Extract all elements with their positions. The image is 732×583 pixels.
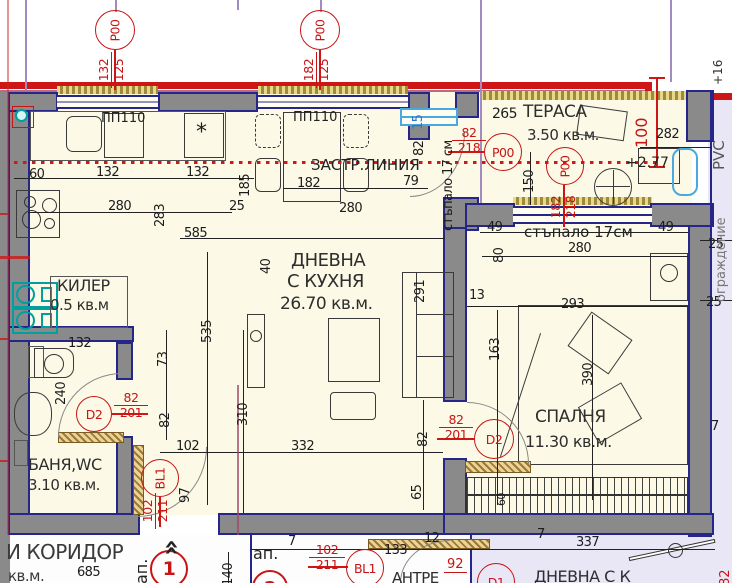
corridor-unit: кв.м. [8, 567, 44, 583]
door-size-b: 201 [439, 427, 473, 442]
dim-label: 60 [495, 493, 508, 506]
door-marker-d2: D2 [474, 419, 514, 459]
sofa [402, 272, 454, 398]
door-marker-label: D2 [486, 432, 503, 447]
axis-dim: 182 125 [302, 52, 331, 88]
axis-dim: 132 125 [97, 52, 126, 88]
dim-line [14, 178, 254, 179]
wall-line-bottom [250, 535, 252, 583]
dim-label: 82 [416, 432, 431, 447]
level-mark: +2.77 [626, 155, 669, 171]
dim-label: 49 [658, 220, 673, 235]
dim-label: 291 [413, 280, 428, 303]
dim-label: 585 [184, 226, 207, 241]
room-living-area: 26.70 кв.м. [280, 294, 373, 314]
dim-82-red: 82 [718, 569, 732, 583]
edge-mark [0, 256, 30, 259]
window-type-label: ПП110 [101, 111, 145, 126]
washing-machine-drum [16, 285, 35, 304]
door-size-82-201: 82 201 [439, 413, 473, 442]
door-size-a: 82 [452, 126, 486, 140]
wall-bottom [218, 513, 445, 535]
door-marker-label: BL1 [354, 561, 376, 576]
dim-label: 15 [411, 115, 426, 130]
armchair [330, 392, 376, 420]
dim-label: 185 [238, 174, 253, 197]
entrance-arrow-glyph: » [156, 539, 186, 556]
door-marker-label: D2 [86, 407, 103, 422]
wall-bedroom-right [688, 225, 712, 537]
door-size-b: 201 [114, 405, 148, 420]
dim-label: 283 [153, 204, 168, 227]
apartment-number: 2 [264, 578, 276, 583]
dim-label: 280 [108, 199, 131, 214]
dim-label: 310 [236, 403, 251, 426]
door-marker-p00: P00 [484, 133, 522, 171]
dim-label: 7 [537, 527, 545, 542]
room-bedroom-name: СПАЛНЯ [535, 407, 606, 427]
wall-divider-lower [443, 458, 467, 515]
entrance-arrow-icon: » [156, 556, 173, 583]
room-bath-area: 3.10 кв.м. [28, 476, 100, 494]
dim-label: 82 [412, 141, 427, 156]
door-size-b: 218 [452, 140, 486, 155]
lamp [660, 264, 678, 282]
dim-label: 332 [291, 439, 314, 454]
room-living-name2: С КУХНЯ [287, 271, 364, 292]
dryer-drum [16, 311, 35, 330]
room-bedroom-area: 11.30 кв.м. [525, 432, 612, 451]
door-size-a: 82 [114, 391, 148, 405]
dim-label: 102 [176, 439, 199, 454]
dim-label: 293 [561, 297, 584, 312]
dining-chair [343, 114, 369, 148]
terrace-door-window [513, 206, 652, 224]
stove-burner [44, 218, 55, 229]
sofa-seat-line [416, 314, 454, 315]
dim-label: 40 [259, 259, 274, 274]
window-sill [513, 197, 652, 205]
window-sill [258, 86, 408, 94]
toilet-bowl [44, 354, 64, 374]
door-marker-p00: P00 [546, 147, 584, 185]
floor-plan: * [0, 0, 732, 583]
apartment-1-label: ап. [132, 559, 151, 583]
door-size-b: 211 [155, 493, 170, 529]
dim-100-red: 100 [632, 117, 651, 148]
fridge-star-icon: * [196, 120, 207, 145]
dim-label: 97 [178, 488, 193, 503]
dining-window [258, 95, 408, 109]
dim-label: 140 [221, 563, 236, 583]
tv-knob [250, 330, 262, 342]
door-marker-label: D1 [488, 575, 505, 583]
coffee-table [328, 318, 380, 382]
dim-line [180, 238, 445, 239]
building-line-label: ЗАСТР.ЛИНИЯ [311, 156, 420, 174]
rain-pipe [672, 148, 698, 196]
wall-bottom [443, 513, 714, 535]
room-terrace-area: 3.50 кв.м. [527, 126, 599, 144]
tv-stand [247, 314, 265, 388]
dim-label: 79 [403, 174, 418, 189]
axis-dim-bot: 125 [316, 52, 331, 88]
door-size-82-218: 82 218 [452, 126, 486, 155]
step-label-vertical: стъпало 17 см [441, 140, 456, 231]
dim-label: 282 [656, 127, 679, 142]
wall-niche-pier [455, 92, 479, 118]
dim-label: 163 [488, 338, 503, 361]
axis-marker-p00: P00 [95, 10, 135, 50]
dim-label: 240 [54, 382, 69, 405]
dim-label: 132 [68, 336, 91, 351]
kitchen-window [57, 95, 158, 109]
door-size-a: 82 [439, 413, 473, 427]
dim-label: 82 [158, 413, 173, 428]
dim-label: 390 [581, 363, 596, 386]
apartment-2-label: ап. [253, 544, 278, 563]
niche-window [400, 108, 458, 126]
door-marker-bl1: BL1 [141, 459, 179, 497]
door-size-102-211: 102 211 [309, 543, 345, 572]
axis-dim-top: 132 [97, 52, 111, 88]
dim-label: 132 [186, 165, 209, 180]
axis-marker-label: P00 [107, 19, 122, 41]
dim-label: 685 [77, 565, 100, 580]
dim-label: 535 [200, 320, 215, 343]
door-marker-label: BL1 [153, 467, 168, 489]
dim-label: 133 [384, 543, 407, 558]
room-kiler-name: КИЛЕР [57, 276, 110, 295]
bath-fixture [14, 440, 28, 466]
dim-label: 25 [229, 199, 244, 214]
dim-label: 280 [568, 241, 591, 256]
dim-label: 12 [424, 531, 439, 546]
dim-label: 337 [576, 535, 599, 550]
axis-marker-label: P00 [312, 19, 327, 41]
axis-dim-bot: 125 [111, 52, 126, 88]
step-label-horizontal: стъпало 17см [524, 223, 633, 241]
door-size-182-218: 182 218 [549, 187, 578, 227]
door-size-b: 218 [563, 187, 578, 227]
kitchen-sink [66, 116, 102, 152]
grid-line [25, 0, 27, 90]
dim-label: 150 [522, 170, 537, 193]
neighbor-door-knob [668, 543, 683, 558]
dining-chair [255, 114, 281, 148]
dim-label: 280 [339, 201, 362, 216]
terrace-prefix: 265 [492, 106, 517, 122]
door-size-b: 211 [309, 557, 345, 572]
room-bath-name: БАНЯ,WC [28, 455, 102, 474]
level-mark2: +16 [711, 60, 725, 85]
dim-label: 60 [29, 167, 44, 182]
stove-burner [24, 196, 36, 208]
corridor-name: И КОРИДОР [6, 540, 123, 564]
room-living-name1: ДНЕВНА [291, 250, 365, 271]
window-type-label: ПП110 [293, 110, 337, 125]
dim-92-red: 92 [444, 557, 467, 573]
door-marker-label: P00 [557, 155, 572, 177]
wall-bath-right [116, 436, 133, 515]
room-terrace-name: ТЕРАСА [523, 102, 587, 122]
dim-label: 7 [711, 419, 719, 434]
dim-label: 73 [156, 352, 171, 367]
dim-label: 49 [487, 220, 502, 235]
door-size-a: 182 [549, 187, 563, 227]
pvc-label2: ограждение [714, 217, 729, 302]
dim-label: 132 [96, 165, 119, 180]
dim-line [207, 252, 208, 505]
dim-label: 182 [297, 176, 320, 191]
axis-marker-p00: P00 [300, 10, 340, 50]
grid-line [480, 0, 482, 207]
edge-line [7, 0, 9, 535]
door-size-82-201: 82 201 [114, 391, 148, 420]
sofa-seat-line [416, 356, 454, 357]
dim-line [482, 256, 688, 257]
dim-label: 80 [492, 248, 507, 263]
grid-tick [237, 0, 239, 10]
boiler-icon [15, 109, 28, 122]
axis-dim-top: 182 [302, 52, 316, 88]
stove-burner [42, 198, 57, 213]
wall-bottom [8, 513, 140, 535]
table-cross [596, 186, 630, 187]
room-antre-name: АНТРЕ [392, 569, 439, 583]
door-marker-d2: D2 [76, 396, 112, 432]
room-kiler-area: 0.5 кв.м [50, 296, 109, 314]
washbasin [14, 392, 52, 436]
wall-top [158, 92, 258, 112]
door-marker-label: P00 [492, 145, 514, 160]
dim-label: 65 [410, 485, 425, 500]
dim-label: 7 [288, 534, 296, 549]
door-size-102-211: 102 211 [141, 493, 170, 529]
neighbor-living-name: ДНЕВНА С К [534, 567, 630, 583]
door-size-a: 102 [309, 543, 345, 557]
door-size-a: 102 [141, 493, 155, 529]
red-dim-tick [649, 77, 665, 79]
door-marker-bl1: BL1 [346, 549, 384, 583]
pvc-label: PVC [710, 140, 728, 170]
dim-label: 13 [469, 288, 484, 303]
grid-line [670, 0, 672, 82]
